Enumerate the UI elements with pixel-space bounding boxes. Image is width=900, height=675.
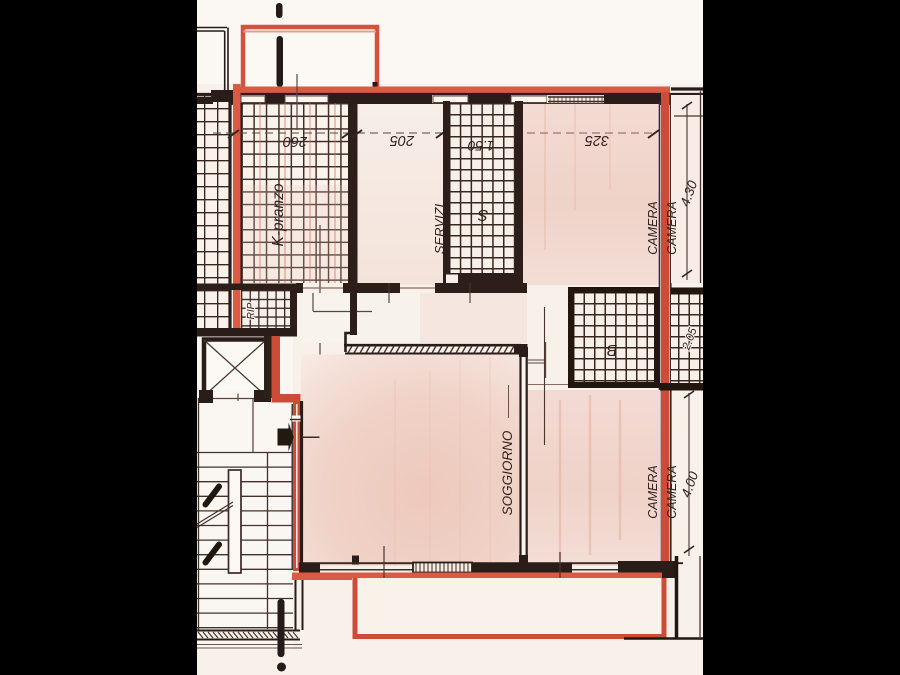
svg-text:CAMERA: CAMERA bbox=[665, 201, 679, 254]
svg-text:K-pranzo: K-pranzo bbox=[270, 183, 287, 246]
svg-text:1.50: 1.50 bbox=[467, 138, 494, 153]
svg-text:RIP: RIP bbox=[246, 302, 257, 319]
svg-text:325: 325 bbox=[584, 132, 609, 148]
svg-text:SOGGIORNO: SOGGIORNO bbox=[500, 430, 515, 515]
svg-text:CAMERA: CAMERA bbox=[646, 465, 660, 518]
svg-text:B: B bbox=[606, 341, 617, 358]
svg-text:205: 205 bbox=[389, 132, 415, 148]
svg-text:CAMERA: CAMERA bbox=[646, 201, 660, 254]
svg-text:CAMERA: CAMERA bbox=[665, 465, 679, 518]
svg-text:S: S bbox=[477, 206, 488, 223]
svg-text:260: 260 bbox=[283, 133, 308, 149]
